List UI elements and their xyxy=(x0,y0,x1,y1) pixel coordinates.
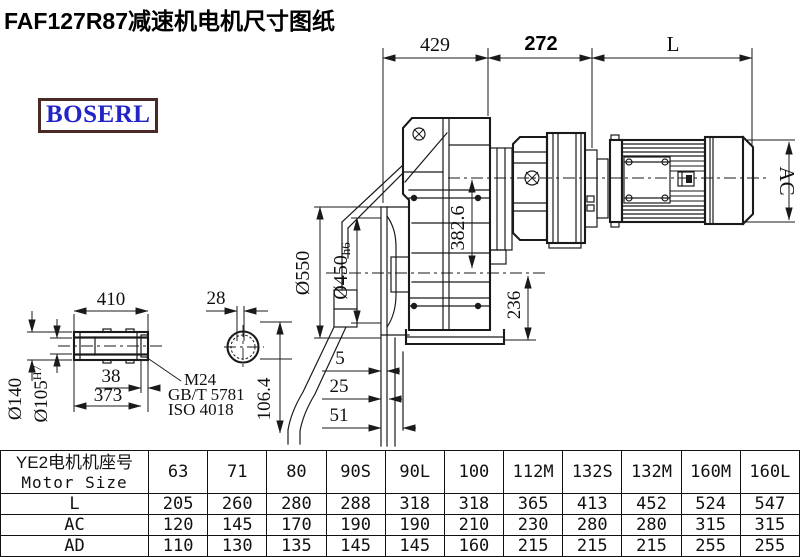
leader-iso: ISO 4018 xyxy=(168,400,234,419)
table-cell: 280 xyxy=(267,494,326,515)
dim-28: 28 xyxy=(207,288,226,309)
dim-5: 5 xyxy=(335,348,345,369)
dimensions: 429 272 L Ø550 Ø450h6 382.6 236 AC 5 xyxy=(5,32,799,433)
row-label: AD xyxy=(1,536,149,557)
dim-L: L xyxy=(667,32,680,56)
motor-side-view xyxy=(610,135,753,227)
table-cell: 365 xyxy=(504,494,563,515)
table-cell: 315 xyxy=(681,515,740,536)
page: 429 272 L Ø550 Ø450h6 382.6 236 AC 5 xyxy=(0,0,800,557)
table-cell: 315 xyxy=(740,515,799,536)
table-cell: 288 xyxy=(326,494,385,515)
dim-51: 51 xyxy=(330,405,349,426)
r87-gear-unit xyxy=(513,133,608,248)
table-cell: 215 xyxy=(504,536,563,557)
dim-272: 272 xyxy=(524,33,557,55)
dim-25: 25 xyxy=(330,376,349,397)
table-cell: 413 xyxy=(563,494,622,515)
header-cn: YE2电机机座号 xyxy=(1,453,148,473)
table-cell: 524 xyxy=(681,494,740,515)
table-col-header: 80 xyxy=(267,451,326,494)
dim-106: 106.4 xyxy=(254,377,275,420)
table-cell: 190 xyxy=(385,515,444,536)
table-col-header: 160M xyxy=(681,451,740,494)
dim-450h6: Ø450h6 xyxy=(330,242,353,300)
dim-236: 236 xyxy=(504,291,525,320)
brand-logo-text: BOSERL xyxy=(46,101,150,128)
brand-logo: BOSERL xyxy=(38,98,158,133)
table-col-header: 100 xyxy=(444,451,503,494)
page-title: FAF127R87减速机电机尺寸图纸 xyxy=(4,2,335,36)
dim-AC: AC xyxy=(775,166,799,195)
table-cell: 280 xyxy=(622,515,681,536)
row-label: L xyxy=(1,494,149,515)
table-cell: 190 xyxy=(326,515,385,536)
table-row-AD: AD 110 130 135 145 145 160 215 215 215 2… xyxy=(1,536,800,557)
table-col-header: 90L xyxy=(385,451,444,494)
table-cell: 170 xyxy=(267,515,326,536)
table-col-header: 112M xyxy=(504,451,563,494)
table-col-header: 160L xyxy=(740,451,799,494)
dim-382: 382.6 xyxy=(447,206,469,251)
table-col-header: 132S xyxy=(563,451,622,494)
table-cell: 255 xyxy=(681,536,740,557)
table-cell: 280 xyxy=(563,515,622,536)
table-cell: 318 xyxy=(444,494,503,515)
dim-429: 429 xyxy=(420,34,450,56)
table-cell: 230 xyxy=(504,515,563,536)
technical-drawing: 429 272 L Ø550 Ø450h6 382.6 236 AC 5 xyxy=(0,0,800,450)
table-cell: 215 xyxy=(622,536,681,557)
table-cell: 130 xyxy=(208,536,267,557)
table-cell: 145 xyxy=(208,515,267,536)
table-col-header: 63 xyxy=(149,451,208,494)
dim-373: 373 xyxy=(94,385,123,406)
header-en: Motor Size xyxy=(1,473,148,492)
table-cell: 145 xyxy=(326,536,385,557)
table-cell: 120 xyxy=(149,515,208,536)
dim-410: 410 xyxy=(97,289,126,310)
table-cell: 160 xyxy=(444,536,503,557)
table-cell: 452 xyxy=(622,494,681,515)
table-cell: 318 xyxy=(385,494,444,515)
row-label: AC xyxy=(1,515,149,536)
motor-size-table: YE2电机机座号 Motor Size 63 71 80 90S 90L 100… xyxy=(0,450,800,557)
table-row-L: L 205 260 280 288 318 318 365 413 452 52… xyxy=(1,494,800,515)
table-header-motor-size: YE2电机机座号 Motor Size xyxy=(1,451,149,494)
dim-38: 38 xyxy=(102,366,121,387)
table-col-header: 132M xyxy=(622,451,681,494)
table-cell: 547 xyxy=(740,494,799,515)
table-cell: 255 xyxy=(740,536,799,557)
shaft-detail-view xyxy=(74,329,181,381)
table-cell: 205 xyxy=(149,494,208,515)
centerlines xyxy=(58,178,768,369)
dim-105H7: Ø105H7 xyxy=(30,366,52,423)
table-col-header: 90S xyxy=(326,451,385,494)
dim-550: Ø550 xyxy=(292,251,314,295)
table-cell: 110 xyxy=(149,536,208,557)
table-cell: 145 xyxy=(385,536,444,557)
table-row-AC: AC 120 145 170 190 190 210 230 280 280 3… xyxy=(1,515,800,536)
table-cell: 135 xyxy=(267,536,326,557)
dim-140: Ø140 xyxy=(5,378,26,420)
table-header-row: YE2电机机座号 Motor Size 63 71 80 90S 90L 100… xyxy=(1,451,800,494)
table-cell: 260 xyxy=(208,494,267,515)
table-col-header: 71 xyxy=(208,451,267,494)
table-cell: 215 xyxy=(563,536,622,557)
table-cell: 210 xyxy=(444,515,503,536)
